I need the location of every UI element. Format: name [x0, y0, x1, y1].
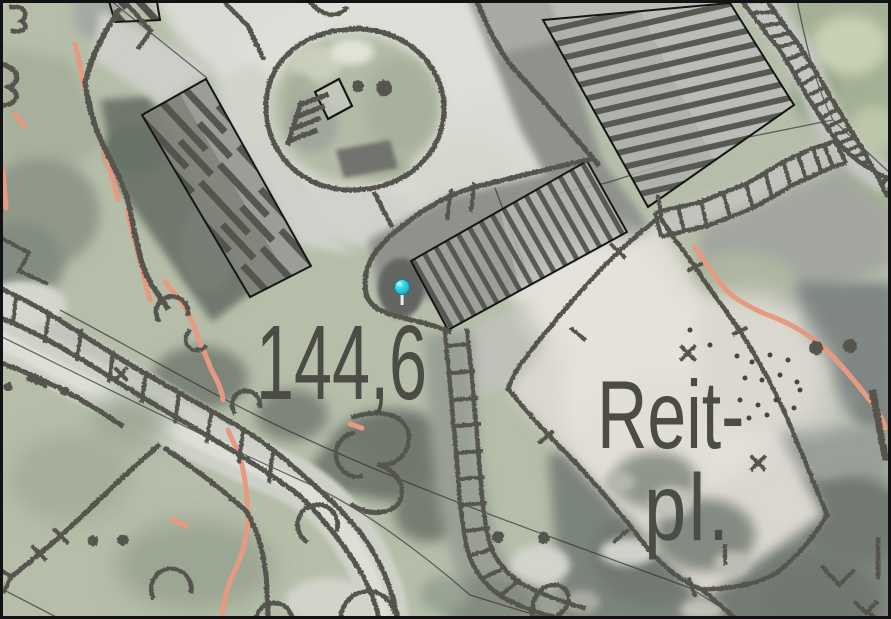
svg-text:Reit-: Reit- — [597, 360, 744, 469]
svg-text:144,6: 144,6 — [256, 303, 427, 422]
svg-text:pl.: pl. — [644, 455, 731, 561]
